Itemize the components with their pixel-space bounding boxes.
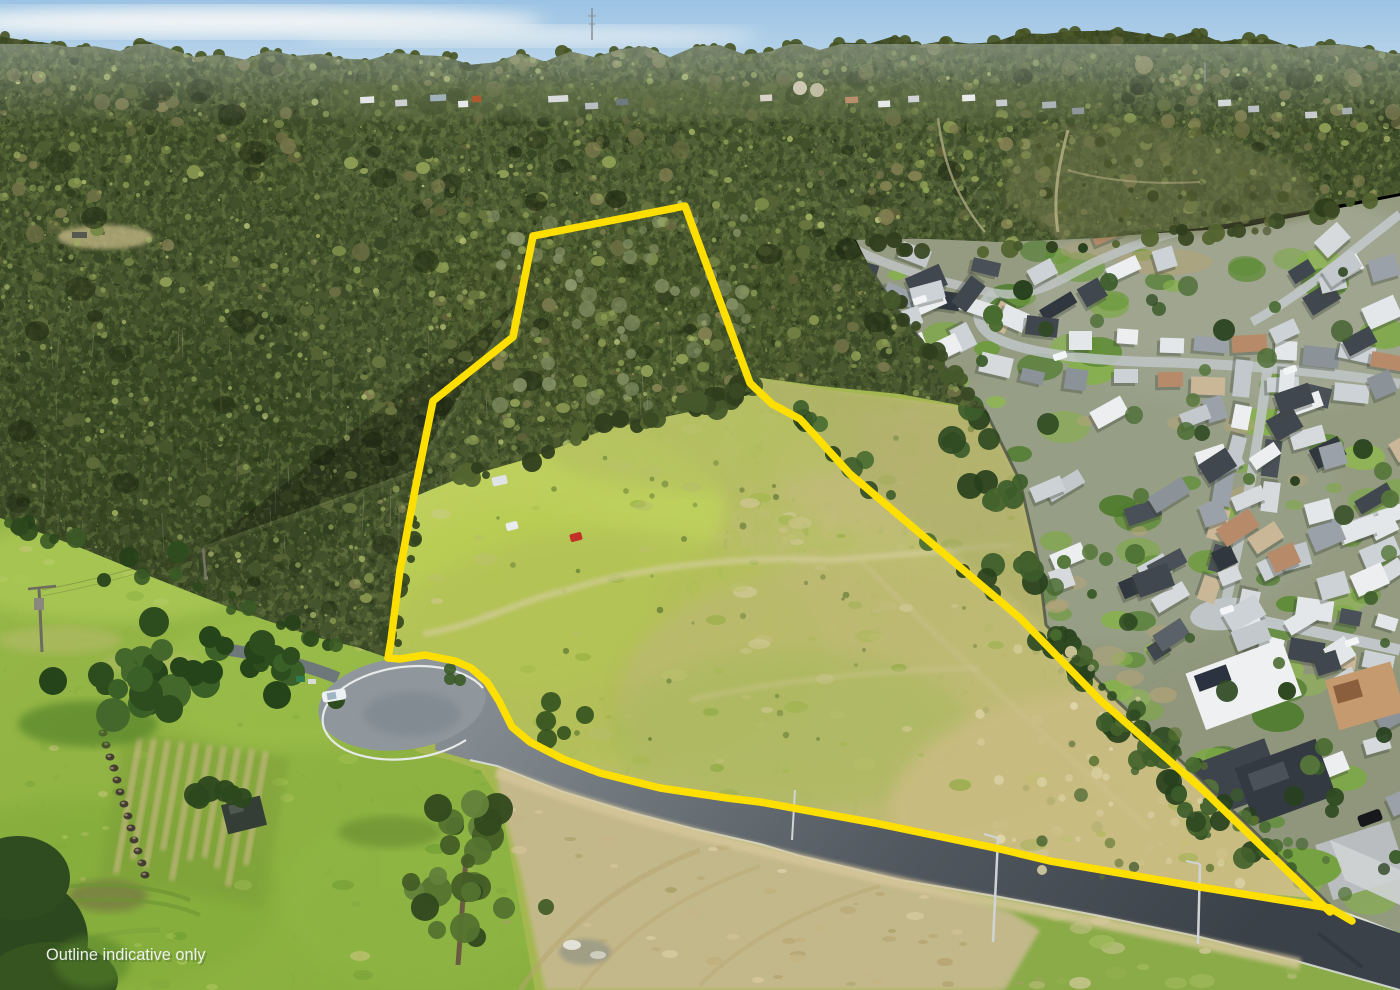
svg-text:Outline indicative only: Outline indicative only (46, 946, 206, 964)
